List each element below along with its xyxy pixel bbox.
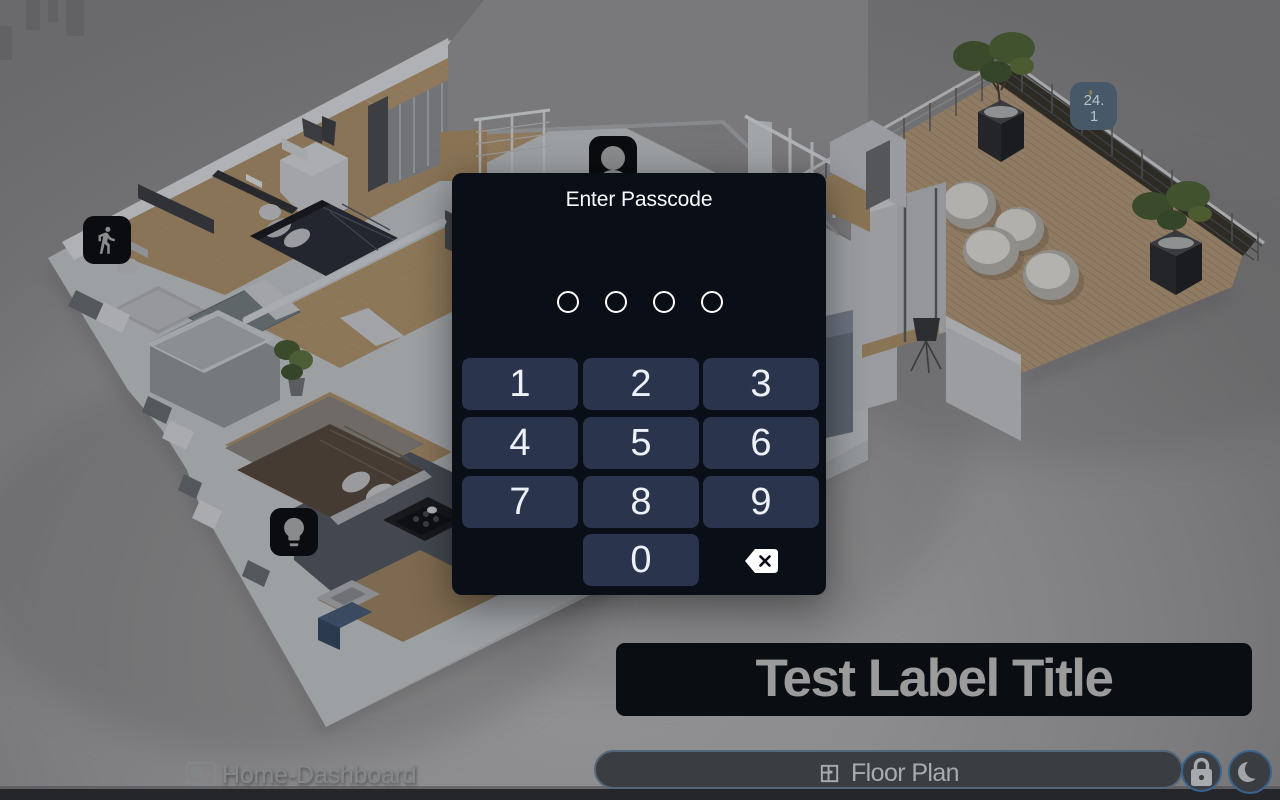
svg-text:1: 1 bbox=[1090, 108, 1098, 125]
svg-text:24.: 24. bbox=[1084, 92, 1105, 109]
